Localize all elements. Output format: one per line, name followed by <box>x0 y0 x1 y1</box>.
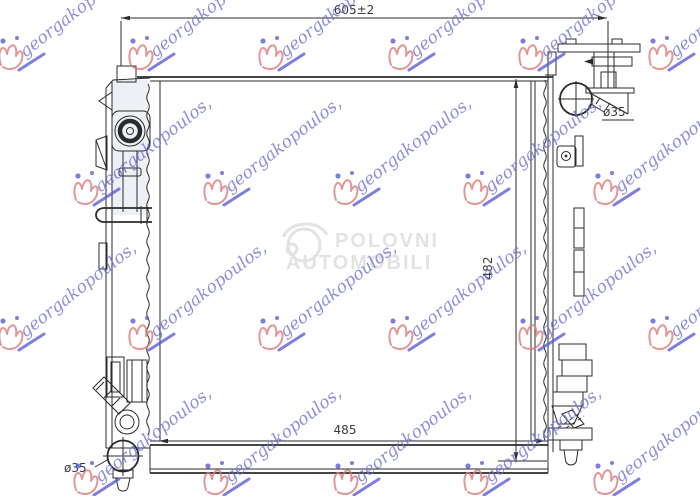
watermark-tile <box>0 238 141 350</box>
radiator-technical-drawing: georgakopoulos, POLOVNI AUTOMOBILI <box>0 0 700 496</box>
pipe-arrow <box>584 59 593 65</box>
watermark-tile <box>519 0 660 70</box>
watermark-tile <box>594 383 700 495</box>
dimension-core-width: 485 <box>159 423 545 443</box>
watermark-tile <box>129 238 270 350</box>
watermark-tile <box>259 0 400 70</box>
radiator-drawing-page: georgakopoulos, POLOVNI AUTOMOBILI <box>0 0 700 496</box>
dimension-pipe-top: ø35 <box>602 105 634 120</box>
watermark-tile <box>129 0 270 70</box>
watermark-tile <box>334 383 475 495</box>
watermark-tile <box>389 0 530 70</box>
watermark-tile <box>204 383 345 495</box>
watermark-tile <box>204 93 345 205</box>
watermark-tile <box>649 0 700 70</box>
mount-plug <box>564 450 578 465</box>
left-bracket-plate <box>96 136 107 170</box>
right-wall-fittings <box>557 136 584 296</box>
watermark-tile <box>519 238 660 350</box>
dim-core-label: 485 <box>334 423 357 437</box>
dim-pipe-top-label: ø35 <box>603 105 626 119</box>
watermark-tile <box>334 93 475 205</box>
watermark-tile <box>74 383 215 495</box>
watermark-tile <box>0 0 141 70</box>
lower-left-brackets <box>107 357 147 402</box>
